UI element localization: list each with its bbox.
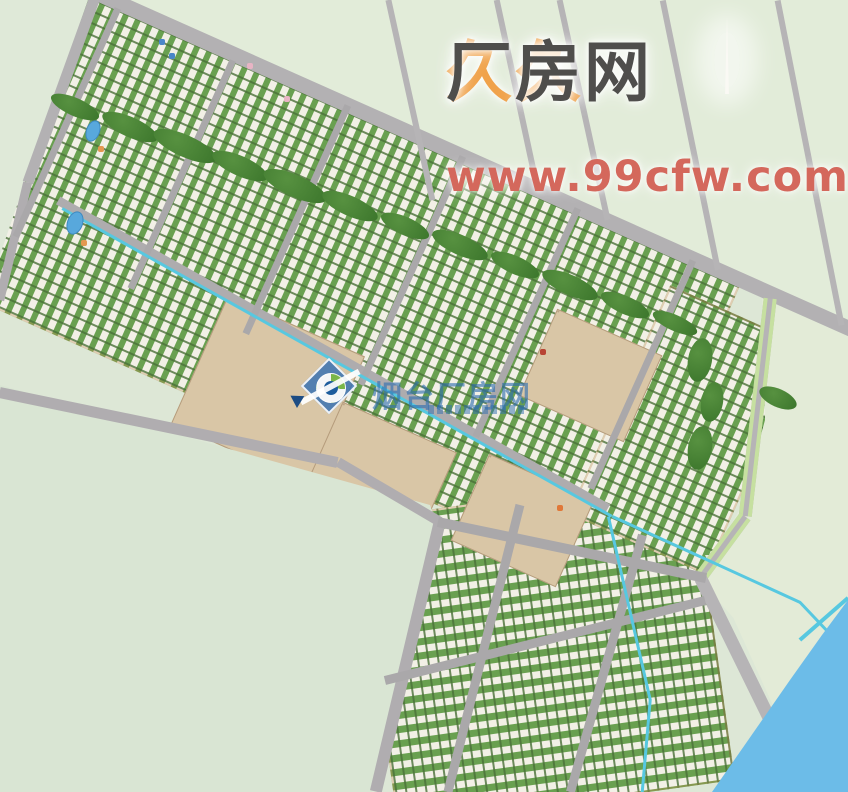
roof-accent	[540, 349, 546, 355]
watermark-url: www.99cfw.com	[446, 156, 848, 199]
watermark-logo	[303, 360, 359, 416]
factory-building	[488, 455, 491, 458]
watermark-brand-suffix: 厂房网	[446, 40, 653, 106]
roof-accent	[81, 240, 87, 246]
roof-accent	[159, 39, 165, 45]
factory-building	[556, 310, 559, 313]
roof-accent	[247, 63, 253, 69]
roof-accent	[169, 53, 175, 59]
roof-accent	[98, 146, 104, 152]
roof-accent	[284, 96, 290, 102]
site-plan-map: 久久厂房网 www.99cfw.com 烟台厂房网	[0, 0, 848, 792]
watermark-center-subtext-strip	[428, 405, 526, 414]
roof-accent	[557, 505, 563, 511]
